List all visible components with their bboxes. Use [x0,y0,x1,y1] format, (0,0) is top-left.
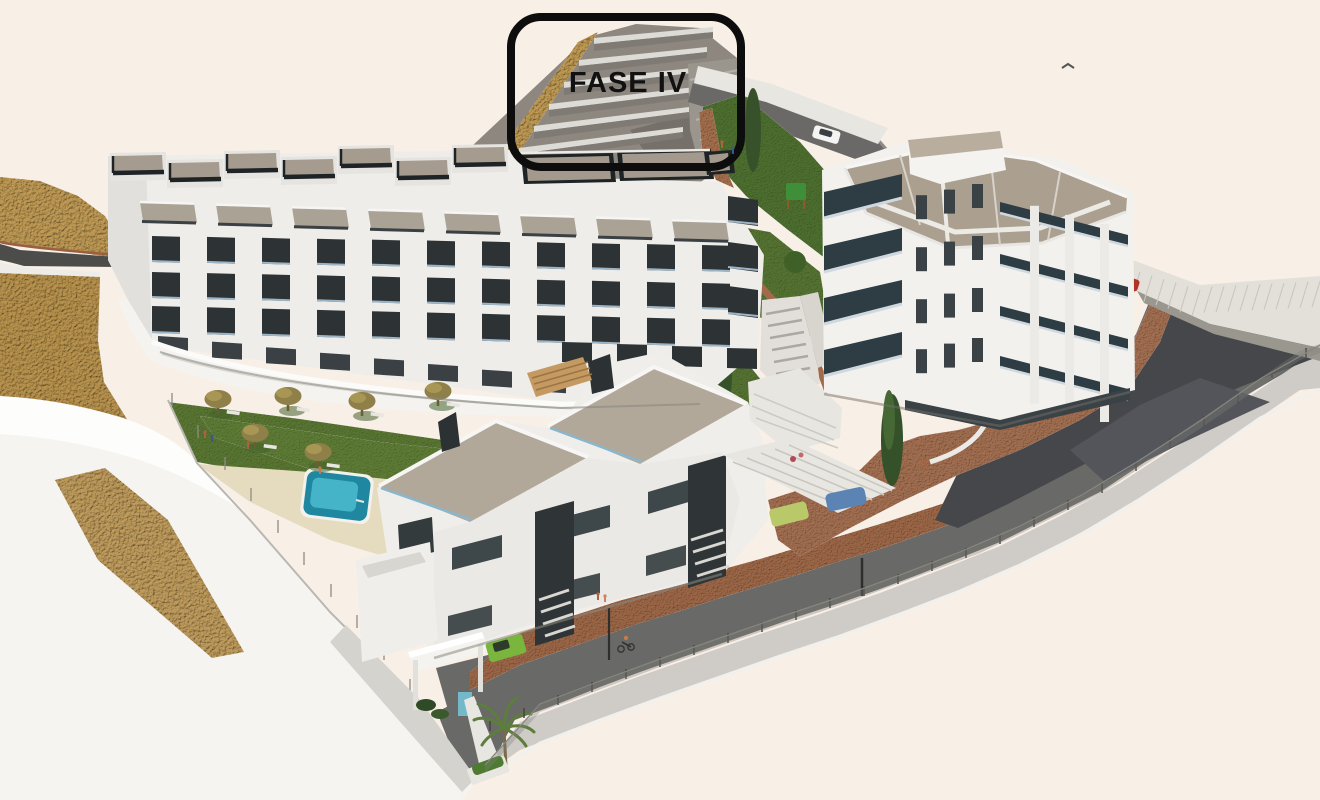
svg-text:FASE IV: FASE IV [569,67,687,99]
